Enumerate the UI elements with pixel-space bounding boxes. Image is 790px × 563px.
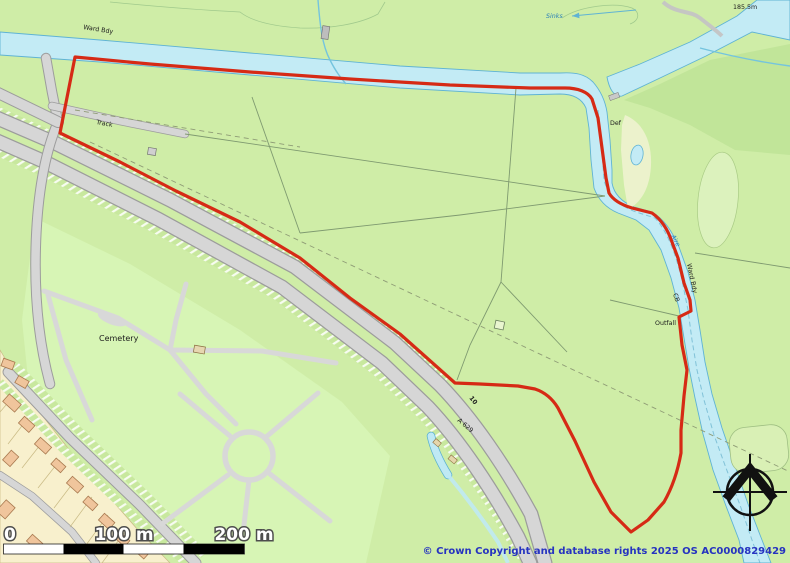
scale-zero: 0 — [4, 525, 16, 545]
scale-bar-seg4 — [184, 544, 245, 554]
spot-height-label: 185.5m — [733, 4, 757, 11]
field-shed — [494, 320, 504, 330]
map-frame: Ward Bdy Track Sinks 185.5m Def Aire War… — [0, 0, 790, 563]
outfall-label: Outfall — [655, 320, 676, 327]
map-image: Ward Bdy Track Sinks 185.5m Def Aire War… — [0, 0, 790, 563]
cemetery-building — [193, 345, 205, 354]
def-label: Def — [610, 120, 622, 127]
scale-bar-seg2 — [64, 544, 124, 554]
culvert-rect — [321, 26, 330, 40]
hut-near-track — [147, 147, 156, 155]
scale-200m: 200 m — [214, 525, 273, 545]
scale-100m: 100 m — [94, 525, 153, 545]
copyright-text: © Crown Copyright and database rights 20… — [423, 546, 786, 557]
cemetery-label: Cemetery — [99, 334, 139, 343]
sinks-label: Sinks — [546, 13, 563, 20]
enclosure-near-compass — [728, 423, 790, 475]
